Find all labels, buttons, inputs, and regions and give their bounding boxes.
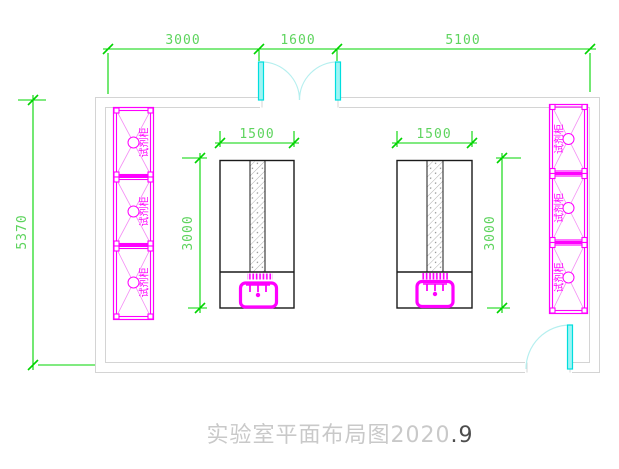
dim-label-bench-width: 1500	[416, 127, 451, 142]
cabinet-shelf-divider	[115, 175, 153, 178]
cabinet-unit: 试剂柜	[114, 246, 153, 319]
door-leaf-right	[336, 62, 341, 100]
floor-plan-svg: 试剂柜 试剂柜 试剂柜	[0, 0, 619, 469]
cabinet-unit: 试剂柜	[114, 177, 153, 246]
bench-left-depth-dimension: 3000	[181, 153, 207, 313]
bench-right-width-dimension: 1500	[392, 127, 477, 148]
cabinet-shelf-divider	[115, 244, 153, 247]
bench-hatch-strip	[427, 161, 443, 273]
room-walls	[96, 98, 600, 373]
cabinet-unit: 试剂柜	[114, 108, 153, 177]
cabinet-label: 试剂柜	[553, 124, 566, 154]
top-dimension-chain: 3000 1600 5100	[103, 33, 596, 94]
bench-right-depth-dimension: 3000	[483, 153, 521, 313]
cabinet-unit: 试剂柜	[550, 174, 587, 243]
bottom-door-opening	[525, 360, 572, 376]
bench-hatch-strip	[250, 161, 265, 273]
left-dimension: 5370	[15, 95, 95, 370]
sink-grill	[422, 273, 448, 280]
cabinet-label: 试剂柜	[138, 268, 151, 298]
dim-label-room-height: 5370	[15, 214, 30, 249]
dim-label-top-middle: 1600	[280, 33, 315, 48]
drawing-title-suffix: .9	[451, 423, 474, 448]
cabinet-label: 试剂柜	[138, 128, 151, 158]
dimensions: 3000 1600 5100 5370 1500	[15, 33, 596, 370]
cabinet-label: 试剂柜	[138, 197, 151, 227]
bench-left-width-dimension: 1500	[215, 127, 299, 148]
lab-bench-left	[220, 161, 294, 309]
cabinet-label: 试剂柜	[553, 263, 566, 293]
door-leaf-left	[259, 62, 264, 100]
faucet-icon	[433, 292, 437, 296]
cad-drawing-area[interactable]: 试剂柜 试剂柜 试剂柜	[0, 0, 619, 469]
faucet-icon	[256, 293, 260, 297]
reagent-cabinet-column-right: 试剂柜 试剂柜 试剂柜	[550, 105, 588, 314]
reagent-cabinet-column-left: 试剂柜 试剂柜 试剂柜	[114, 108, 154, 320]
dim-label-top-left: 3000	[165, 33, 200, 48]
wall-outer-line	[96, 98, 600, 373]
dim-label-bench-depth: 3000	[483, 215, 498, 250]
cabinet-unit: 试剂柜	[550, 105, 587, 174]
dim-label-bench-width: 1500	[239, 127, 274, 142]
cabinet-unit: 试剂柜	[550, 243, 587, 314]
wall-inner-line	[106, 108, 590, 363]
cabinet-label: 试剂柜	[553, 193, 566, 223]
cabinet-shelf-divider	[551, 172, 587, 175]
cabinet-shelf-divider	[551, 241, 587, 244]
drawing-title: 实验室平面布局图2020.9	[207, 423, 474, 448]
door-leaf	[568, 325, 573, 369]
dim-label-top-right: 5100	[445, 33, 480, 48]
dim-label-bench-depth: 3000	[181, 215, 196, 250]
sink-grill	[247, 274, 273, 280]
lab-bench-right	[397, 161, 472, 309]
drawing-title-main: 实验室平面布局图2020	[207, 423, 451, 448]
